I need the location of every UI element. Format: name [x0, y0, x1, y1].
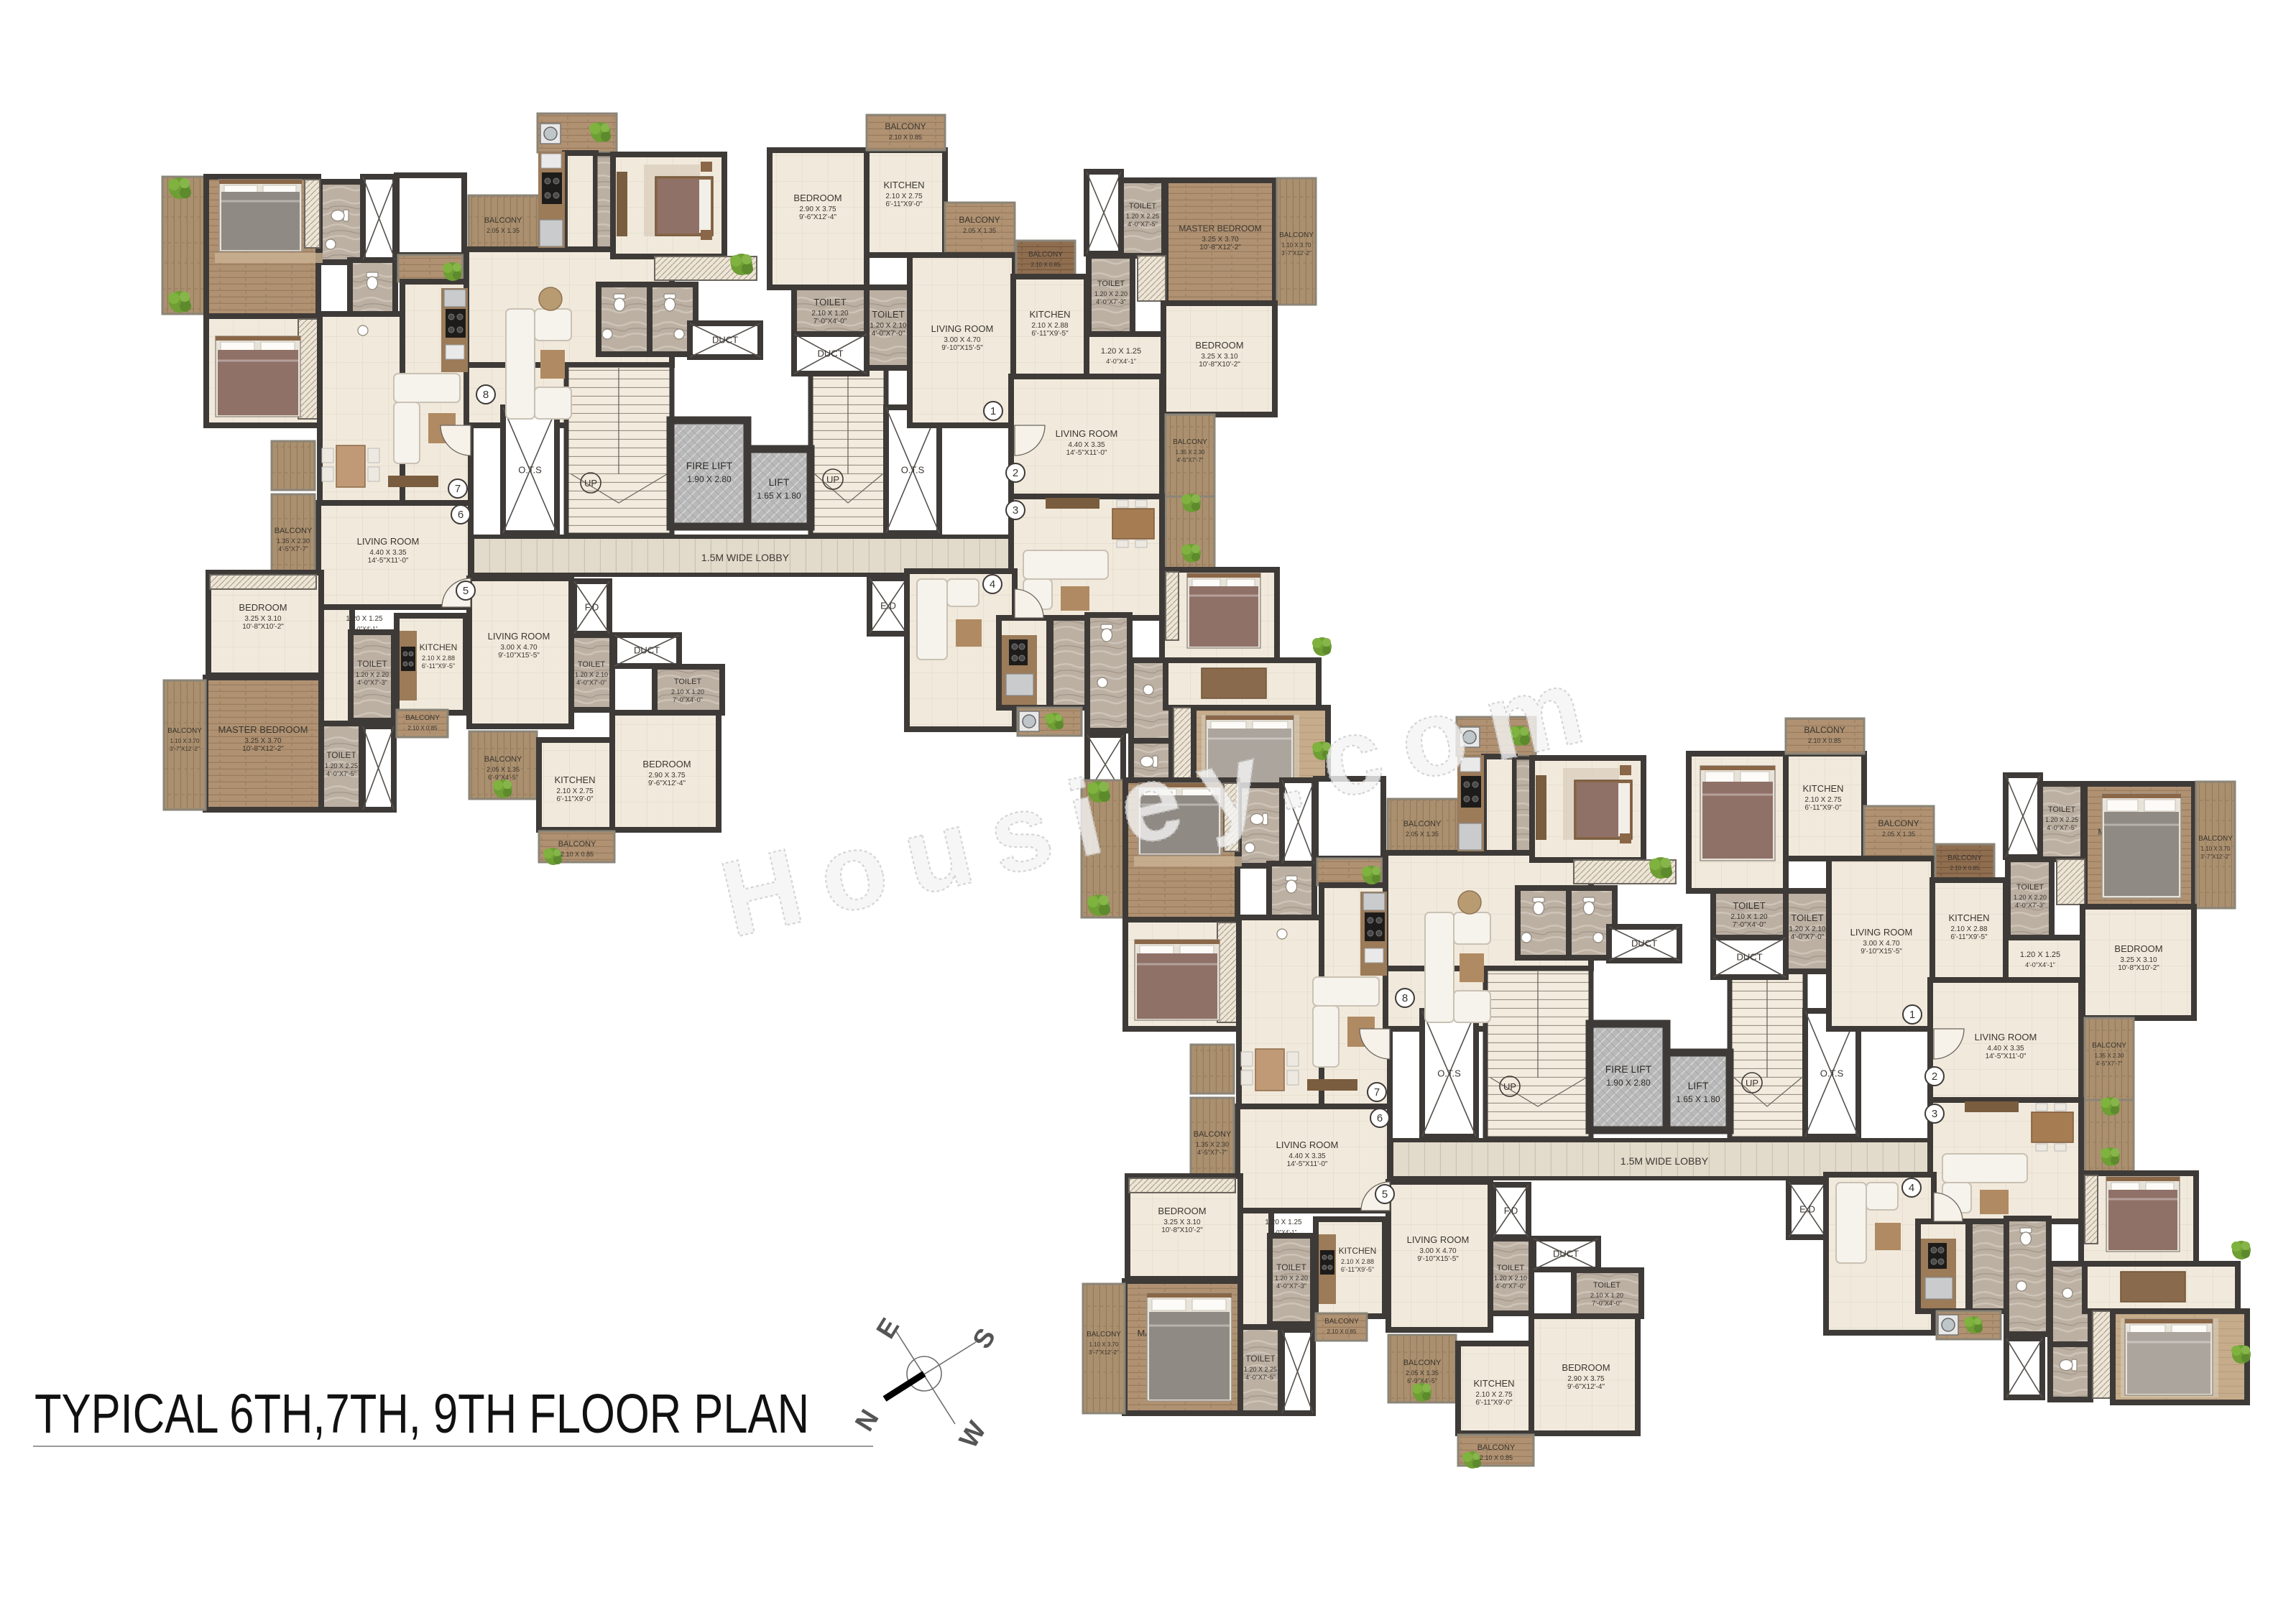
- svg-text:TOILET: TOILET: [813, 297, 846, 308]
- svg-text:2.90 X 3.75: 2.90 X 3.75: [799, 205, 836, 213]
- svg-text:1.20 X 2.25: 1.20 X 2.25: [1126, 213, 1159, 220]
- svg-text:BALCONY: BALCONY: [167, 727, 202, 735]
- svg-text:1.10 X 3.70: 1.10 X 3.70: [1282, 242, 1311, 249]
- svg-text:BALCONY: BALCONY: [1173, 438, 1207, 446]
- svg-text:2.05 X 1.35: 2.05 X 1.35: [487, 766, 520, 773]
- svg-text:LIVING ROOM: LIVING ROOM: [931, 323, 994, 334]
- svg-text:2.10 X 0.85: 2.10 X 0.85: [1031, 262, 1061, 268]
- svg-text:BEDROOM: BEDROOM: [1195, 340, 1243, 351]
- svg-text:5: 5: [463, 585, 469, 597]
- svg-text:TYPICAL 6TH,7TH, 9TH FLOOR PLA: TYPICAL 6TH,7TH, 9TH FLOOR PLAN: [34, 1383, 809, 1445]
- svg-text:2.10 X 2.75: 2.10 X 2.75: [885, 193, 923, 200]
- svg-text:9'-6"X12'-4": 9'-6"X12'-4": [799, 213, 837, 221]
- svg-text:3.25 X 3.10: 3.25 X 3.10: [244, 615, 282, 623]
- svg-text:6'-11"X9'-5": 6'-11"X9'-5": [422, 662, 455, 670]
- svg-text:3.00 X 4.70: 3.00 X 4.70: [500, 644, 538, 652]
- svg-text:KITCHEN: KITCHEN: [554, 774, 595, 785]
- svg-text:TOILET: TOILET: [1129, 202, 1157, 211]
- svg-text:BALCONY: BALCONY: [484, 755, 522, 764]
- svg-text:2.10 X 0.85: 2.10 X 0.85: [408, 725, 438, 731]
- svg-text:BALCONY: BALCONY: [959, 215, 1000, 225]
- svg-text:2.05 X 1.35: 2.05 X 1.35: [487, 227, 520, 234]
- svg-text:10'-8"X10'-2": 10'-8"X10'-2": [1199, 361, 1240, 369]
- svg-text:4'-5"X7'-7": 4'-5"X7'-7": [1176, 457, 1203, 463]
- svg-text:4'-0"X4'-1": 4'-0"X4'-1": [1106, 358, 1136, 365]
- svg-text:2.10 X 1.20: 2.10 X 1.20: [671, 688, 704, 695]
- svg-text:3'-7"X12'-2": 3'-7"X12'-2": [170, 746, 200, 752]
- svg-text:TOILET: TOILET: [578, 660, 606, 669]
- svg-text:4.40 X 3.35: 4.40 X 3.35: [369, 549, 407, 557]
- svg-text:4'-0"X7'-3": 4'-0"X7'-3": [357, 679, 387, 686]
- svg-text:F.D: F.D: [585, 602, 599, 613]
- svg-text:KITCHEN: KITCHEN: [420, 642, 458, 652]
- svg-text:DUCT: DUCT: [712, 335, 738, 346]
- svg-text:3: 3: [1013, 504, 1018, 517]
- svg-text:FIRE LIFT: FIRE LIFT: [686, 460, 733, 471]
- svg-text:3.00 X 4.70: 3.00 X 4.70: [944, 336, 981, 344]
- svg-text:3.25 X 3.70: 3.25 X 3.70: [1202, 236, 1239, 244]
- svg-text:8: 8: [483, 389, 489, 401]
- svg-text:TOILET: TOILET: [1097, 279, 1125, 288]
- svg-text:BALCONY: BALCONY: [275, 527, 313, 535]
- svg-text:2: 2: [1013, 467, 1018, 479]
- svg-text:DUCT: DUCT: [817, 348, 843, 359]
- svg-text:TOILET: TOILET: [357, 659, 387, 669]
- svg-text:2.10 X 0.85: 2.10 X 0.85: [561, 851, 594, 858]
- svg-text:E.D: E.D: [880, 601, 896, 611]
- svg-text:3.25 X 3.10: 3.25 X 3.10: [1201, 353, 1238, 361]
- svg-text:BEDROOM: BEDROOM: [239, 602, 287, 613]
- svg-text:LIVING ROOM: LIVING ROOM: [488, 631, 550, 642]
- svg-text:UP: UP: [826, 474, 839, 485]
- svg-text:10'-8"X10'-2": 10'-8"X10'-2": [242, 623, 284, 631]
- svg-text:2.10 X 0.85: 2.10 X 0.85: [889, 134, 922, 141]
- svg-text:4.40 X 3.35: 4.40 X 3.35: [1068, 441, 1105, 449]
- svg-text:10'-8"X12'-2": 10'-8"X12'-2": [242, 745, 284, 753]
- svg-text:3.25 X 3.70: 3.25 X 3.70: [244, 737, 282, 745]
- svg-text:4'-0"X7'-0": 4'-0"X7'-0": [872, 330, 905, 338]
- svg-text:6'-11"X9'-0": 6'-11"X9'-0": [556, 795, 594, 803]
- svg-text:6'-9"X4'-5": 6'-9"X4'-5": [488, 774, 518, 781]
- svg-text:1.20 X 2.20: 1.20 X 2.20: [1094, 290, 1128, 297]
- svg-text:BALCONY: BALCONY: [484, 216, 522, 225]
- svg-text:1.20 X 2.25: 1.20 X 2.25: [325, 762, 358, 769]
- svg-text:UP: UP: [584, 478, 597, 489]
- svg-text:LIFT: LIFT: [769, 476, 790, 488]
- svg-text:4'-0"X7'-5": 4'-0"X7'-5": [326, 770, 356, 777]
- svg-text:7'-0"X4'-0": 7'-0"X4'-0": [673, 696, 703, 703]
- svg-text:1.5M WIDE LOBBY: 1.5M WIDE LOBBY: [701, 552, 790, 563]
- svg-text:TOILET: TOILET: [326, 750, 356, 760]
- svg-text:1.20 X 2.10: 1.20 X 2.10: [575, 671, 608, 678]
- svg-text:BALCONY: BALCONY: [1279, 231, 1314, 239]
- svg-text:9'-10"X15'-5": 9'-10"X15'-5": [941, 344, 983, 352]
- svg-text:2.10 X 2.88: 2.10 X 2.88: [1031, 322, 1069, 330]
- svg-text:KITCHEN: KITCHEN: [883, 180, 924, 190]
- svg-text:1.10 X 3.70: 1.10 X 3.70: [170, 738, 200, 744]
- svg-text:2.90 X 3.75: 2.90 X 3.75: [648, 772, 686, 780]
- svg-text:O.T.S: O.T.S: [901, 465, 925, 476]
- svg-text:4'-0"X7'-5": 4'-0"X7'-5": [1128, 221, 1158, 228]
- svg-text:6'-11"X9'-0": 6'-11"X9'-0": [885, 200, 923, 208]
- svg-text:2.10 X 2.75: 2.10 X 2.75: [556, 787, 594, 795]
- svg-text:O.T.S: O.T.S: [518, 465, 542, 476]
- svg-text:4'-0"X7'-3": 4'-0"X7'-3": [1096, 298, 1126, 305]
- svg-text:14'-5"X11'-0": 14'-5"X11'-0": [1066, 449, 1107, 457]
- svg-text:BALCONY: BALCONY: [405, 714, 440, 722]
- svg-text:4'-5"X7'-7": 4'-5"X7'-7": [278, 545, 308, 552]
- svg-text:DUCT: DUCT: [634, 645, 660, 656]
- svg-text:3'-7"X12'-2": 3'-7"X12'-2": [1281, 250, 1311, 256]
- svg-text:4'-0"X4'-1": 4'-0"X4'-1": [351, 626, 377, 632]
- svg-text:BEDROOM: BEDROOM: [642, 759, 691, 769]
- svg-text:1.20 X 1.25: 1.20 X 1.25: [1101, 347, 1141, 356]
- svg-text:2.10 X 2.88: 2.10 X 2.88: [422, 655, 455, 662]
- svg-text:MASTER BEDROOM: MASTER BEDROOM: [218, 724, 308, 735]
- svg-text:1.20 X 1.25: 1.20 X 1.25: [346, 615, 383, 623]
- svg-text:4'-0"X7'-0": 4'-0"X7'-0": [576, 679, 607, 686]
- svg-text:TOILET: TOILET: [674, 678, 702, 686]
- svg-text:MASTER BEDROOM: MASTER BEDROOM: [1179, 223, 1261, 233]
- svg-text:1.20 X 2.20: 1.20 X 2.20: [356, 671, 389, 678]
- svg-text:KITCHEN: KITCHEN: [1029, 309, 1070, 320]
- svg-text:1.35 X 2.30: 1.35 X 2.30: [277, 537, 310, 545]
- svg-text:2.10 X 1.20: 2.10 X 1.20: [811, 310, 849, 318]
- svg-text:2.05 X 1.35: 2.05 X 1.35: [963, 227, 996, 234]
- svg-text:9'-6"X12'-4": 9'-6"X12'-4": [648, 780, 686, 787]
- svg-text:6'-11"X9'-5": 6'-11"X9'-5": [1031, 330, 1069, 338]
- svg-text:1.35 X 2.30: 1.35 X 2.30: [1176, 449, 1205, 456]
- svg-text:4: 4: [990, 578, 995, 591]
- svg-text:6: 6: [458, 509, 464, 521]
- svg-text:1.20 X 2.10: 1.20 X 2.10: [870, 322, 907, 330]
- svg-text:14'-5"X11'-0": 14'-5"X11'-0": [368, 557, 409, 565]
- svg-text:BALCONY: BALCONY: [885, 121, 926, 131]
- svg-text:10'-8"X12'-2": 10'-8"X12'-2": [1199, 244, 1241, 251]
- svg-text:9'-10"X15'-5": 9'-10"X15'-5": [498, 652, 540, 660]
- svg-text:BALCONY: BALCONY: [1028, 251, 1063, 259]
- svg-text:BEDROOM: BEDROOM: [793, 193, 842, 203]
- svg-text:BALCONY: BALCONY: [558, 840, 596, 849]
- svg-text:LIVING ROOM: LIVING ROOM: [1056, 428, 1118, 439]
- svg-text:1.65 X 1.80: 1.65 X 1.80: [757, 491, 801, 501]
- svg-text:1: 1: [990, 405, 996, 417]
- svg-text:1.90 X 2.80: 1.90 X 2.80: [687, 474, 732, 484]
- svg-text:TOILET: TOILET: [872, 309, 904, 320]
- svg-text:7: 7: [455, 483, 461, 495]
- svg-text:7'-0"X4'-0": 7'-0"X4'-0": [813, 318, 847, 325]
- svg-text:LIVING ROOM: LIVING ROOM: [357, 536, 420, 547]
